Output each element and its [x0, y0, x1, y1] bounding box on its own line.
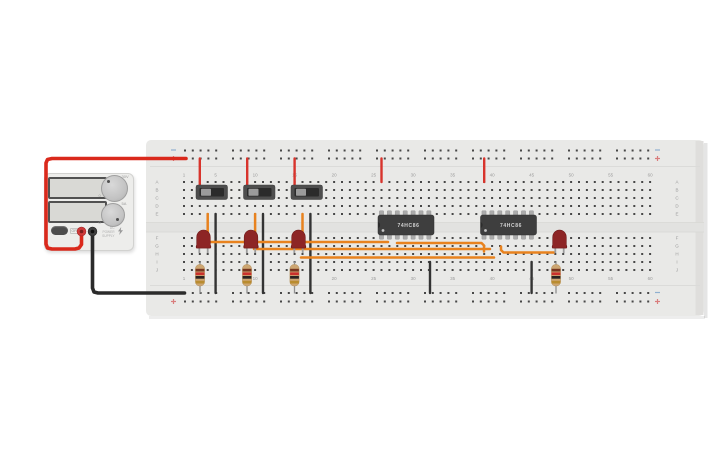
pin[interactable] — [357, 253, 359, 255]
rail-pin[interactable] — [232, 150, 234, 152]
pin[interactable] — [341, 213, 343, 215]
pin[interactable] — [531, 189, 533, 191]
pin[interactable] — [325, 197, 327, 199]
rail-pin[interactable] — [215, 150, 217, 152]
pin[interactable] — [491, 181, 493, 183]
pin[interactable] — [428, 253, 430, 255]
pin[interactable] — [436, 181, 438, 183]
pin[interactable] — [460, 269, 462, 271]
rail-pin[interactable] — [392, 301, 394, 303]
pin[interactable] — [570, 237, 572, 239]
pin[interactable] — [349, 205, 351, 207]
pin[interactable] — [467, 269, 469, 271]
pin[interactable] — [365, 181, 367, 183]
rail-pin[interactable] — [599, 292, 601, 294]
rail-pin[interactable] — [472, 292, 474, 294]
pin[interactable] — [349, 181, 351, 183]
pin[interactable] — [523, 189, 525, 191]
pin[interactable] — [483, 253, 485, 255]
pin[interactable] — [649, 245, 651, 247]
pin[interactable] — [381, 197, 383, 199]
pin[interactable] — [230, 237, 232, 239]
pin[interactable] — [286, 269, 288, 271]
pin[interactable] — [578, 269, 580, 271]
pin[interactable] — [610, 181, 612, 183]
pin[interactable] — [388, 253, 390, 255]
rail-pin[interactable] — [591, 292, 593, 294]
pin[interactable] — [412, 269, 414, 271]
rail-pin[interactable] — [392, 292, 394, 294]
pin[interactable] — [586, 245, 588, 247]
rail-pin[interactable] — [447, 301, 449, 303]
pin[interactable] — [349, 261, 351, 263]
pin[interactable] — [539, 205, 541, 207]
pin[interactable] — [586, 213, 588, 215]
pin[interactable] — [436, 261, 438, 263]
pin[interactable] — [254, 269, 256, 271]
rail-pin[interactable] — [632, 158, 634, 160]
voltage-knob[interactable] — [101, 175, 128, 202]
pin[interactable] — [412, 197, 414, 199]
pin[interactable] — [523, 205, 525, 207]
pin[interactable] — [381, 245, 383, 247]
pin[interactable] — [286, 253, 288, 255]
rail-pin[interactable] — [280, 292, 282, 294]
pin[interactable] — [444, 237, 446, 239]
pin[interactable] — [183, 269, 185, 271]
pin[interactable] — [602, 245, 604, 247]
rail-pin[interactable] — [192, 301, 194, 303]
pin[interactable] — [199, 213, 201, 215]
rail-pin[interactable] — [359, 150, 361, 152]
pin[interactable] — [317, 237, 319, 239]
pin[interactable] — [594, 181, 596, 183]
pin[interactable] — [404, 181, 406, 183]
rail-pin[interactable] — [263, 150, 265, 152]
rail-pin[interactable] — [503, 158, 505, 160]
pin[interactable] — [586, 181, 588, 183]
rail-pin[interactable] — [472, 158, 474, 160]
pin[interactable] — [420, 189, 422, 191]
rail-pin[interactable] — [255, 158, 257, 160]
pin[interactable] — [365, 245, 367, 247]
rail-pin[interactable] — [376, 158, 378, 160]
pin[interactable] — [357, 269, 359, 271]
pin[interactable] — [475, 261, 477, 263]
pin[interactable] — [499, 181, 501, 183]
pin[interactable] — [578, 181, 580, 183]
pin[interactable] — [238, 237, 240, 239]
pin[interactable] — [452, 253, 454, 255]
pin[interactable] — [452, 269, 454, 271]
pin[interactable] — [404, 253, 406, 255]
rail-pin[interactable] — [303, 292, 305, 294]
pin[interactable] — [286, 213, 288, 215]
pin[interactable] — [444, 205, 446, 207]
pin[interactable] — [412, 181, 414, 183]
pin[interactable] — [539, 189, 541, 191]
pin[interactable] — [325, 269, 327, 271]
pin[interactable] — [467, 181, 469, 183]
pin[interactable] — [531, 245, 533, 247]
pin[interactable] — [562, 181, 564, 183]
pin[interactable] — [373, 205, 375, 207]
pin[interactable] — [610, 197, 612, 199]
rail-pin[interactable] — [576, 301, 578, 303]
pin[interactable] — [515, 261, 517, 263]
pin[interactable] — [223, 269, 225, 271]
rail-pin[interactable] — [255, 301, 257, 303]
rail-pin[interactable] — [551, 150, 553, 152]
pin[interactable] — [499, 189, 501, 191]
rail-pin[interactable] — [576, 158, 578, 160]
pin[interactable] — [641, 237, 643, 239]
pin[interactable] — [333, 213, 335, 215]
pin[interactable] — [349, 253, 351, 255]
pin[interactable] — [539, 181, 541, 183]
rail-pin[interactable] — [288, 150, 290, 152]
pin[interactable] — [278, 213, 280, 215]
pin[interactable] — [223, 261, 225, 263]
pin[interactable] — [404, 189, 406, 191]
pin[interactable] — [467, 213, 469, 215]
pin[interactable] — [625, 261, 627, 263]
pin[interactable] — [396, 205, 398, 207]
pin[interactable] — [594, 197, 596, 199]
pin[interactable] — [594, 261, 596, 263]
pin[interactable] — [191, 261, 193, 263]
rail-pin[interactable] — [480, 158, 482, 160]
rail-pin[interactable] — [192, 292, 194, 294]
power-button[interactable] — [51, 226, 68, 235]
pin[interactable] — [570, 213, 572, 215]
pin[interactable] — [412, 245, 414, 247]
pin[interactable] — [491, 245, 493, 247]
pin[interactable] — [452, 245, 454, 247]
pin[interactable] — [444, 197, 446, 199]
pin[interactable] — [452, 237, 454, 239]
pin[interactable] — [578, 213, 580, 215]
rail-pin[interactable] — [616, 158, 618, 160]
rail-pin[interactable] — [599, 301, 601, 303]
pin[interactable] — [618, 181, 620, 183]
pin[interactable] — [199, 205, 201, 207]
rail-pin[interactable] — [351, 301, 353, 303]
switch-slider[interactable] — [201, 189, 211, 196]
pin[interactable] — [349, 245, 351, 247]
pin[interactable] — [286, 261, 288, 263]
pin[interactable] — [294, 253, 296, 255]
pin[interactable] — [238, 181, 240, 183]
pin[interactable] — [388, 189, 390, 191]
pin[interactable] — [286, 205, 288, 207]
pin[interactable] — [570, 253, 572, 255]
pin[interactable] — [396, 245, 398, 247]
pin[interactable] — [546, 237, 548, 239]
pin[interactable] — [491, 261, 493, 263]
pin[interactable] — [467, 245, 469, 247]
pin[interactable] — [491, 269, 493, 271]
rail-pin[interactable] — [407, 301, 409, 303]
pin[interactable] — [444, 245, 446, 247]
rail-pin[interactable] — [351, 158, 353, 160]
pin[interactable] — [373, 181, 375, 183]
pin[interactable] — [531, 197, 533, 199]
pin[interactable] — [333, 253, 335, 255]
rail-pin[interactable] — [520, 301, 522, 303]
pin[interactable] — [207, 181, 209, 183]
pin[interactable] — [286, 189, 288, 191]
rail-pin[interactable] — [184, 292, 186, 294]
pin[interactable] — [317, 213, 319, 215]
rail-pin[interactable] — [520, 150, 522, 152]
pin[interactable] — [317, 205, 319, 207]
pin[interactable] — [270, 261, 272, 263]
pin[interactable] — [594, 189, 596, 191]
pin[interactable] — [562, 213, 564, 215]
pin[interactable] — [578, 197, 580, 199]
pin[interactable] — [191, 213, 193, 215]
switch-slider[interactable] — [249, 189, 259, 196]
pin[interactable] — [507, 189, 509, 191]
pin[interactable] — [325, 245, 327, 247]
pin[interactable] — [278, 181, 280, 183]
rail-pin[interactable] — [440, 158, 442, 160]
pin[interactable] — [539, 269, 541, 271]
pin[interactable] — [562, 197, 564, 199]
pin[interactable] — [570, 205, 572, 207]
pin[interactable] — [191, 253, 193, 255]
rail-pin[interactable] — [288, 292, 290, 294]
pin[interactable] — [238, 189, 240, 191]
pin[interactable] — [460, 245, 462, 247]
pin[interactable] — [333, 197, 335, 199]
pin[interactable] — [641, 245, 643, 247]
pin[interactable] — [396, 261, 398, 263]
rail-pin[interactable] — [296, 150, 298, 152]
rail-pin[interactable] — [184, 301, 186, 303]
pin[interactable] — [230, 253, 232, 255]
pin[interactable] — [436, 245, 438, 247]
rail-pin[interactable] — [551, 158, 553, 160]
rail-pin[interactable] — [528, 150, 530, 152]
pin[interactable] — [602, 205, 604, 207]
pin[interactable] — [412, 189, 414, 191]
pin[interactable] — [507, 205, 509, 207]
pin[interactable] — [317, 253, 319, 255]
pin[interactable] — [223, 213, 225, 215]
pin[interactable] — [381, 205, 383, 207]
rail-pin[interactable] — [591, 301, 593, 303]
pin[interactable] — [467, 237, 469, 239]
pin[interactable] — [641, 253, 643, 255]
pin[interactable] — [633, 205, 635, 207]
pin[interactable] — [191, 181, 193, 183]
pin[interactable] — [570, 269, 572, 271]
rail-pin[interactable] — [447, 150, 449, 152]
rail-pin[interactable] — [399, 158, 401, 160]
pin[interactable] — [475, 245, 477, 247]
pin[interactable] — [183, 205, 185, 207]
pin[interactable] — [539, 245, 541, 247]
rail-pin[interactable] — [240, 150, 242, 152]
pin[interactable] — [610, 213, 612, 215]
pin[interactable] — [444, 189, 446, 191]
pin[interactable] — [460, 253, 462, 255]
pin[interactable] — [523, 269, 525, 271]
pin[interactable] — [349, 269, 351, 271]
rail-pin[interactable] — [288, 158, 290, 160]
rail-pin[interactable] — [296, 292, 298, 294]
rail-pin[interactable] — [576, 150, 578, 152]
pin[interactable] — [262, 181, 264, 183]
pin[interactable] — [404, 261, 406, 263]
pin[interactable] — [625, 189, 627, 191]
pin[interactable] — [499, 253, 501, 255]
pin[interactable] — [649, 269, 651, 271]
switch-slider[interactable] — [296, 189, 306, 196]
pin[interactable] — [467, 253, 469, 255]
pin[interactable] — [562, 205, 564, 207]
pin[interactable] — [460, 181, 462, 183]
pin[interactable] — [302, 253, 304, 255]
pin[interactable] — [191, 237, 193, 239]
pin[interactable] — [436, 253, 438, 255]
pin[interactable] — [594, 205, 596, 207]
pin[interactable] — [649, 197, 651, 199]
pin[interactable] — [602, 181, 604, 183]
pin[interactable] — [238, 261, 240, 263]
rail-pin[interactable] — [543, 150, 545, 152]
rail-pin[interactable] — [536, 150, 538, 152]
pin[interactable] — [207, 253, 209, 255]
pin[interactable] — [191, 189, 193, 191]
rail-pin[interactable] — [455, 158, 457, 160]
pin[interactable] — [341, 261, 343, 263]
pin[interactable] — [215, 181, 217, 183]
pin[interactable] — [183, 253, 185, 255]
pin[interactable] — [633, 181, 635, 183]
rail-pin[interactable] — [263, 301, 265, 303]
pin[interactable] — [420, 205, 422, 207]
pin[interactable] — [625, 205, 627, 207]
pin[interactable] — [491, 189, 493, 191]
rail-pin[interactable] — [376, 292, 378, 294]
pin[interactable] — [618, 269, 620, 271]
pin[interactable] — [341, 197, 343, 199]
pin[interactable] — [428, 197, 430, 199]
pin[interactable] — [420, 197, 422, 199]
rail-pin[interactable] — [280, 158, 282, 160]
pin[interactable] — [373, 269, 375, 271]
pin[interactable] — [230, 269, 232, 271]
pin[interactable] — [618, 253, 620, 255]
rail-pin[interactable] — [472, 150, 474, 152]
pin[interactable] — [633, 261, 635, 263]
pin[interactable] — [183, 245, 185, 247]
pin[interactable] — [602, 197, 604, 199]
pin[interactable] — [507, 197, 509, 199]
rail-pin[interactable] — [232, 158, 234, 160]
rail-pin[interactable] — [359, 301, 361, 303]
pin[interactable] — [633, 269, 635, 271]
pin[interactable] — [610, 269, 612, 271]
rail-pin[interactable] — [624, 158, 626, 160]
rail-pin[interactable] — [192, 150, 194, 152]
pin[interactable] — [625, 253, 627, 255]
pin[interactable] — [357, 213, 359, 215]
pin[interactable] — [633, 189, 635, 191]
pin[interactable] — [507, 245, 509, 247]
rail-pin[interactable] — [551, 301, 553, 303]
rail-pin[interactable] — [599, 150, 601, 152]
pin[interactable] — [436, 197, 438, 199]
pin[interactable] — [586, 205, 588, 207]
rail-pin[interactable] — [568, 301, 570, 303]
pin[interactable] — [191, 205, 193, 207]
pin[interactable] — [436, 213, 438, 215]
rail-pin[interactable] — [440, 292, 442, 294]
pin[interactable] — [357, 189, 359, 191]
pin[interactable] — [649, 205, 651, 207]
pin[interactable] — [625, 197, 627, 199]
pin[interactable] — [460, 261, 462, 263]
pin[interactable] — [341, 269, 343, 271]
pin[interactable] — [562, 269, 564, 271]
pin[interactable] — [633, 253, 635, 255]
rail-pin[interactable] — [536, 158, 538, 160]
pin[interactable] — [436, 189, 438, 191]
pin[interactable] — [199, 253, 201, 255]
rail-pin[interactable] — [503, 301, 505, 303]
pin[interactable] — [341, 189, 343, 191]
rail-pin[interactable] — [624, 292, 626, 294]
pin[interactable] — [191, 245, 193, 247]
rail-pin[interactable] — [407, 292, 409, 294]
pin[interactable] — [223, 237, 225, 239]
pin[interactable] — [238, 245, 240, 247]
pin[interactable] — [483, 197, 485, 199]
pin[interactable] — [183, 237, 185, 239]
rail-pin[interactable] — [303, 150, 305, 152]
pin[interactable] — [578, 189, 580, 191]
pin[interactable] — [507, 261, 509, 263]
pin[interactable] — [483, 269, 485, 271]
pin[interactable] — [325, 213, 327, 215]
pin[interactable] — [460, 189, 462, 191]
rail-pin[interactable] — [207, 158, 209, 160]
pin[interactable] — [562, 261, 564, 263]
pin[interactable] — [420, 261, 422, 263]
pin[interactable] — [286, 197, 288, 199]
pin[interactable] — [207, 205, 209, 207]
pin[interactable] — [515, 197, 517, 199]
rail-pin[interactable] — [584, 292, 586, 294]
rail-pin[interactable] — [455, 150, 457, 152]
rail-pin[interactable] — [336, 301, 338, 303]
rail-pin[interactable] — [488, 301, 490, 303]
pin[interactable] — [191, 197, 193, 199]
pin[interactable] — [515, 205, 517, 207]
pin[interactable] — [436, 269, 438, 271]
rail-pin[interactable] — [376, 301, 378, 303]
pin[interactable] — [586, 189, 588, 191]
pin[interactable] — [373, 213, 375, 215]
rail-pin[interactable] — [432, 158, 434, 160]
pin[interactable] — [539, 197, 541, 199]
rail-pin[interactable] — [536, 292, 538, 294]
pin[interactable] — [333, 237, 335, 239]
